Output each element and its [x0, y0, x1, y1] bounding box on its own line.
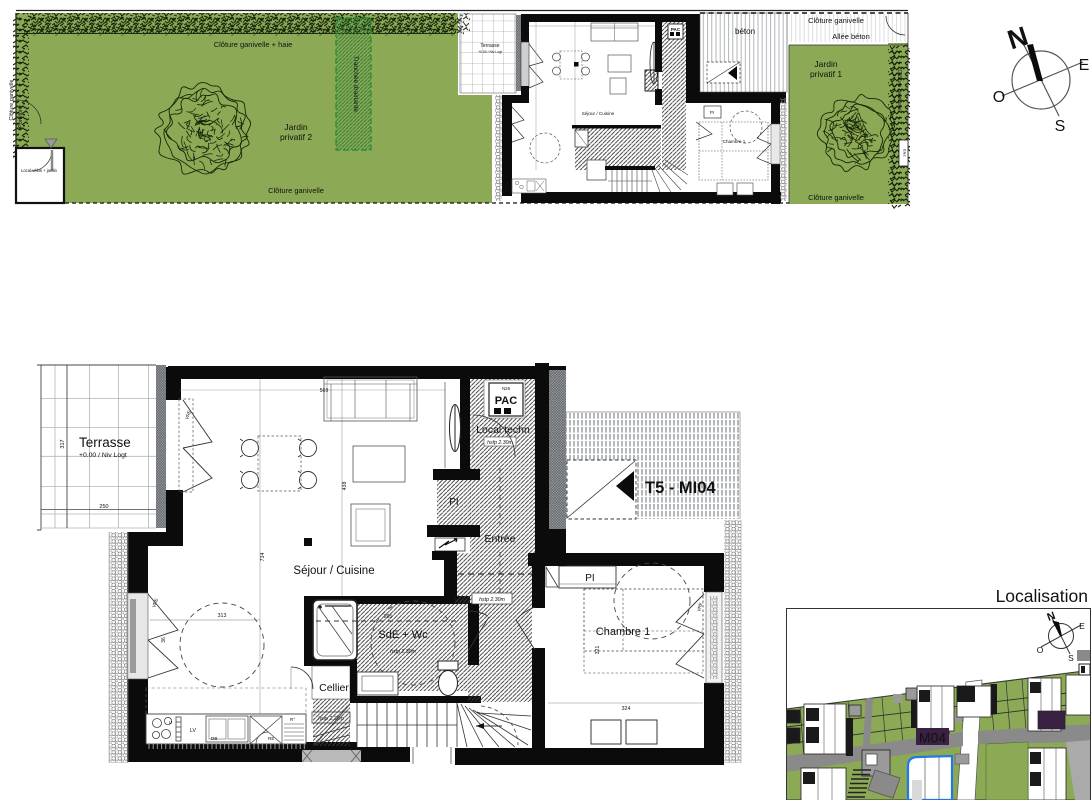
svg-text:Clôture ganivelle: Clôture ganivelle — [896, 70, 902, 111]
svg-text:313: 313 — [218, 613, 227, 619]
svg-text:O: O — [993, 89, 1005, 106]
svg-text:S: S — [1068, 653, 1074, 663]
svg-text:Séjour / Cuisine: Séjour / Cuisine — [293, 565, 374, 577]
svg-text:+0.00 / Niv Logt: +0.00 / Niv Logt — [478, 50, 502, 54]
svg-text:Entrée: Entrée — [485, 533, 516, 545]
svg-text:324: 324 — [622, 706, 631, 712]
svg-text:205: 205 — [384, 614, 393, 620]
svg-text:N26: N26 — [502, 386, 511, 391]
svg-text:LV: LV — [190, 728, 196, 734]
svg-text:734: 734 — [260, 553, 266, 562]
svg-text:Chambre 1: Chambre 1 — [723, 139, 746, 144]
svg-text:Terrasse: Terrasse — [480, 43, 499, 49]
svg-text:321: 321 — [595, 646, 601, 655]
svg-text:PI: PI — [449, 497, 458, 508]
svg-text:Jardin: Jardin — [814, 59, 837, 69]
svg-text:PI: PI — [585, 573, 594, 584]
svg-text:36: 36 — [161, 637, 167, 643]
svg-text:S: S — [1055, 118, 1066, 135]
svg-text:Localisation: Localisation — [996, 586, 1088, 606]
svg-text:DB: DB — [211, 736, 217, 741]
svg-text:RE: RE — [268, 736, 274, 741]
svg-text:Terrasse: Terrasse — [79, 435, 131, 450]
svg-text:Chambre 1: Chambre 1 — [596, 626, 650, 638]
svg-text:Jardin: Jardin — [284, 122, 307, 132]
svg-text:Tranchée drainante: Tranchée drainante — [352, 56, 359, 113]
svg-text:R°: R° — [290, 717, 295, 722]
svg-text:Clôture ganivelle: Clôture ganivelle — [9, 80, 15, 121]
svg-text:PI: PI — [710, 110, 714, 115]
svg-text:hstp 2.30m: hstp 2.30m — [390, 649, 416, 655]
svg-text:béton: béton — [735, 27, 755, 36]
svg-text:250: 250 — [99, 504, 108, 510]
svg-text:Local techn: Local techn — [476, 424, 530, 436]
svg-text:privatif 2: privatif 2 — [280, 132, 312, 142]
svg-text:Portillon: Portillon — [18, 108, 24, 128]
svg-text:Local vélos + jardin: Local vélos + jardin — [21, 168, 58, 173]
svg-text:+0.00 / Niv Logt: +0.00 / Niv Logt — [79, 452, 127, 459]
svg-text:E: E — [1079, 621, 1085, 631]
svg-text:privatif 1: privatif 1 — [810, 69, 842, 79]
svg-text:PAC: PAC — [671, 27, 681, 32]
svg-text:438: 438 — [342, 482, 348, 491]
svg-text:Séjour / Cuisine: Séjour / Cuisine — [582, 111, 615, 116]
svg-text:Clôture ganivelle + haie: Clôture ganivelle + haie — [214, 40, 293, 49]
svg-text:Clôture ganivelle: Clôture ganivelle — [268, 186, 324, 195]
svg-text:PAC: PAC — [495, 395, 517, 407]
svg-text:SdE + Wc: SdE + Wc — [378, 629, 428, 641]
svg-text:T5 - MI04: T5 - MI04 — [645, 479, 716, 497]
svg-text:M04: M04 — [919, 730, 946, 746]
svg-text:317: 317 — [60, 439, 66, 448]
svg-text:Cellier: Cellier — [319, 682, 349, 694]
svg-text:Allée béton: Allée béton — [832, 32, 870, 41]
svg-text:hstp 2.30m: hstp 2.30m — [479, 597, 505, 603]
svg-text:hsfp 2.30m: hsfp 2.30m — [487, 440, 513, 446]
svg-text:O: O — [1037, 645, 1044, 655]
svg-text:E: E — [1079, 57, 1090, 74]
svg-text:Clôture ganivelle: Clôture ganivelle — [808, 193, 864, 202]
svg-text:Clôture ganivelle: Clôture ganivelle — [808, 16, 864, 25]
svg-text:Elec: Elec — [903, 149, 908, 157]
